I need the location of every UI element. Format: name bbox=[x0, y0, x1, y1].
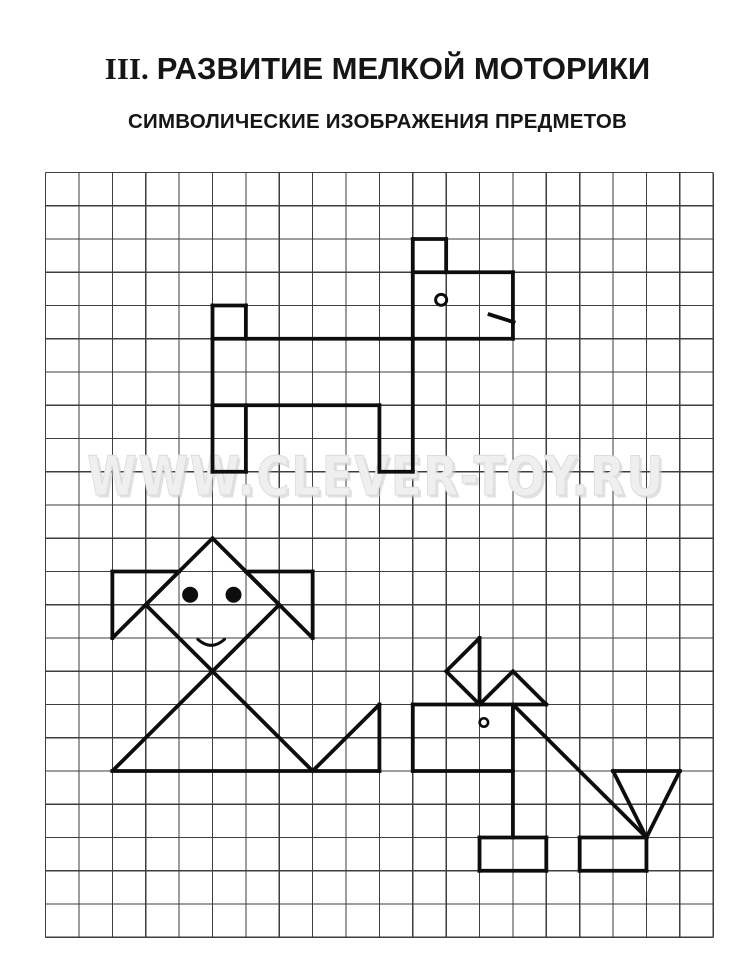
squared-paper-sheet: WWW.CLEVER-TOY.RU WWW.CLEVER-TOY.RU bbox=[0, 0, 755, 960]
workbook-page: III.РАЗВИТИЕ МЕЛКОЙ МОТОРИКИ СИМВОЛИЧЕСК… bbox=[0, 0, 755, 960]
watermark-text: WWW.CLEVER-TOY.RU bbox=[87, 445, 665, 508]
figure-dog bbox=[213, 239, 514, 472]
grid-lines bbox=[46, 173, 714, 938]
